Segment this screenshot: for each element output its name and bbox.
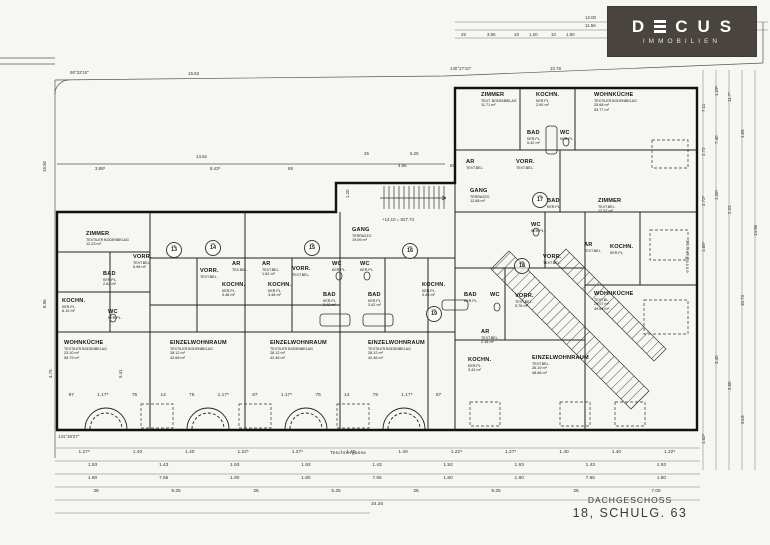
dimension-value: 5.25 (331, 489, 340, 494)
dimension-value: 1.40 (612, 450, 621, 455)
bathtub (363, 314, 393, 326)
street-label-schulgasse: Schulgasse (685, 240, 690, 274)
dimension-value: 1.80 (88, 476, 97, 481)
dimension-value: 1.40 (185, 450, 194, 455)
dimension-row-1: 1.27⁵1.401.401.22⁵1.27⁵1.401.401.22⁵1.27… (57, 450, 697, 455)
dimension-value: 1.17⁵ (218, 393, 229, 398)
brand-letter: U (697, 18, 710, 35)
bay-windows (85, 408, 425, 429)
dimension-value: 1.93 (230, 463, 239, 468)
address-title: 18, SCHULG. 63 (545, 506, 715, 520)
dimension-value: 1.43 (586, 463, 595, 468)
dimension-value: 14 (344, 393, 349, 398)
toilet (364, 272, 370, 280)
dimension-value: 87 (69, 393, 74, 398)
dimension-row-3: 1.807.651.801.807.651.801.807.651.80 (57, 476, 697, 481)
dimension-row-windows: 871.17⁵7514751.17⁵871.17⁵7514751.17⁵87 (57, 393, 453, 398)
dimension-value: 1.92 (443, 463, 452, 468)
brand-letter: C (675, 18, 688, 35)
toilet (336, 272, 342, 280)
dimension-value: 7.65 (586, 476, 595, 481)
title-block: DACHGESCHOSS 18, SCHULG. 63 (545, 495, 715, 520)
dimension-value: 1.17⁵ (281, 393, 292, 398)
dimension-value: 1.27⁵ (505, 450, 516, 455)
dimension-value: 1.93 (88, 463, 97, 468)
decus-wordmark: DCUS (632, 18, 732, 35)
dimension-value: 75 (373, 393, 378, 398)
decus-subtitle: IMMOBILIEN (643, 38, 721, 45)
dimension-value: 1.80 (443, 476, 452, 481)
brand-letter: S (720, 18, 732, 35)
toilet (494, 303, 500, 311)
bathtub (320, 314, 350, 326)
dimension-value: 75 (189, 393, 194, 398)
dimension-value: 1.17⁵ (401, 393, 412, 398)
dimension-value: 7.65 (372, 476, 381, 481)
dimension-value: 1.17⁵ (97, 393, 108, 398)
dimension-value: 1.80 (301, 476, 310, 481)
brand-letter: D (632, 18, 645, 35)
dimension-value: 1.22⁵ (451, 450, 462, 455)
dimension-value: 75 (132, 393, 137, 398)
toilet (563, 138, 569, 146)
dimension-value: 14 (160, 393, 165, 398)
dimension-value: 1.80 (657, 476, 666, 481)
dimension-value: 1.93 (301, 463, 310, 468)
decus-logo: DCUS IMMOBILIEN (608, 7, 756, 56)
dimension-row-total: 34.26 (57, 502, 697, 507)
toilet (110, 314, 116, 322)
dimension-value: 9.25 (491, 489, 500, 494)
dimension-value: 25 (573, 489, 578, 494)
dimension-value: 1.22⁵ (664, 450, 675, 455)
dimension-value: 1.93 (515, 463, 524, 468)
dimension-value: 25 (413, 489, 418, 494)
dimension-value: 7.06 (651, 489, 660, 494)
dimension-value: 1.27⁵ (292, 450, 303, 455)
staircase (380, 186, 446, 209)
dimension-value: 9.25 (171, 489, 180, 494)
dimension-value: 1.40 (398, 450, 407, 455)
dimension-value: 1.22⁵ (237, 450, 248, 455)
dimension-value: 7.65 (159, 476, 168, 481)
dimension-value: 38 (93, 489, 98, 494)
dimension-value: 34.26 (371, 502, 383, 507)
dimension-value: 1.93 (657, 463, 666, 468)
dimension-value: 1.40 (559, 450, 568, 455)
dimension-value: 1.80 (230, 476, 239, 481)
dimension-row-4: 389.25255.25259.25257.06 (57, 489, 697, 494)
dimension-value: 1.80 (515, 476, 524, 481)
dimension-value: 1.43 (159, 463, 168, 468)
floorplan-page: DCUS IMMOBILIEN DACHGESCHOSS 18, SCHULG.… (0, 0, 770, 545)
stylized-e-icon (654, 20, 666, 33)
dimension-value: 75 (315, 393, 320, 398)
dimension-value: 1.40 (133, 450, 142, 455)
dimension-lines (55, 22, 768, 513)
dimension-value: 87 (436, 393, 441, 398)
toilet (533, 228, 539, 236)
dimension-row-2: 1.931.431.931.931.431.921.931.431.93 (57, 463, 697, 468)
dimension-value: 1.27⁵ (78, 450, 89, 455)
dimension-value: 1.40 (346, 450, 355, 455)
dimension-value: 87 (252, 393, 257, 398)
dimension-value: 25 (253, 489, 258, 494)
dimension-value: 1.43 (372, 463, 381, 468)
